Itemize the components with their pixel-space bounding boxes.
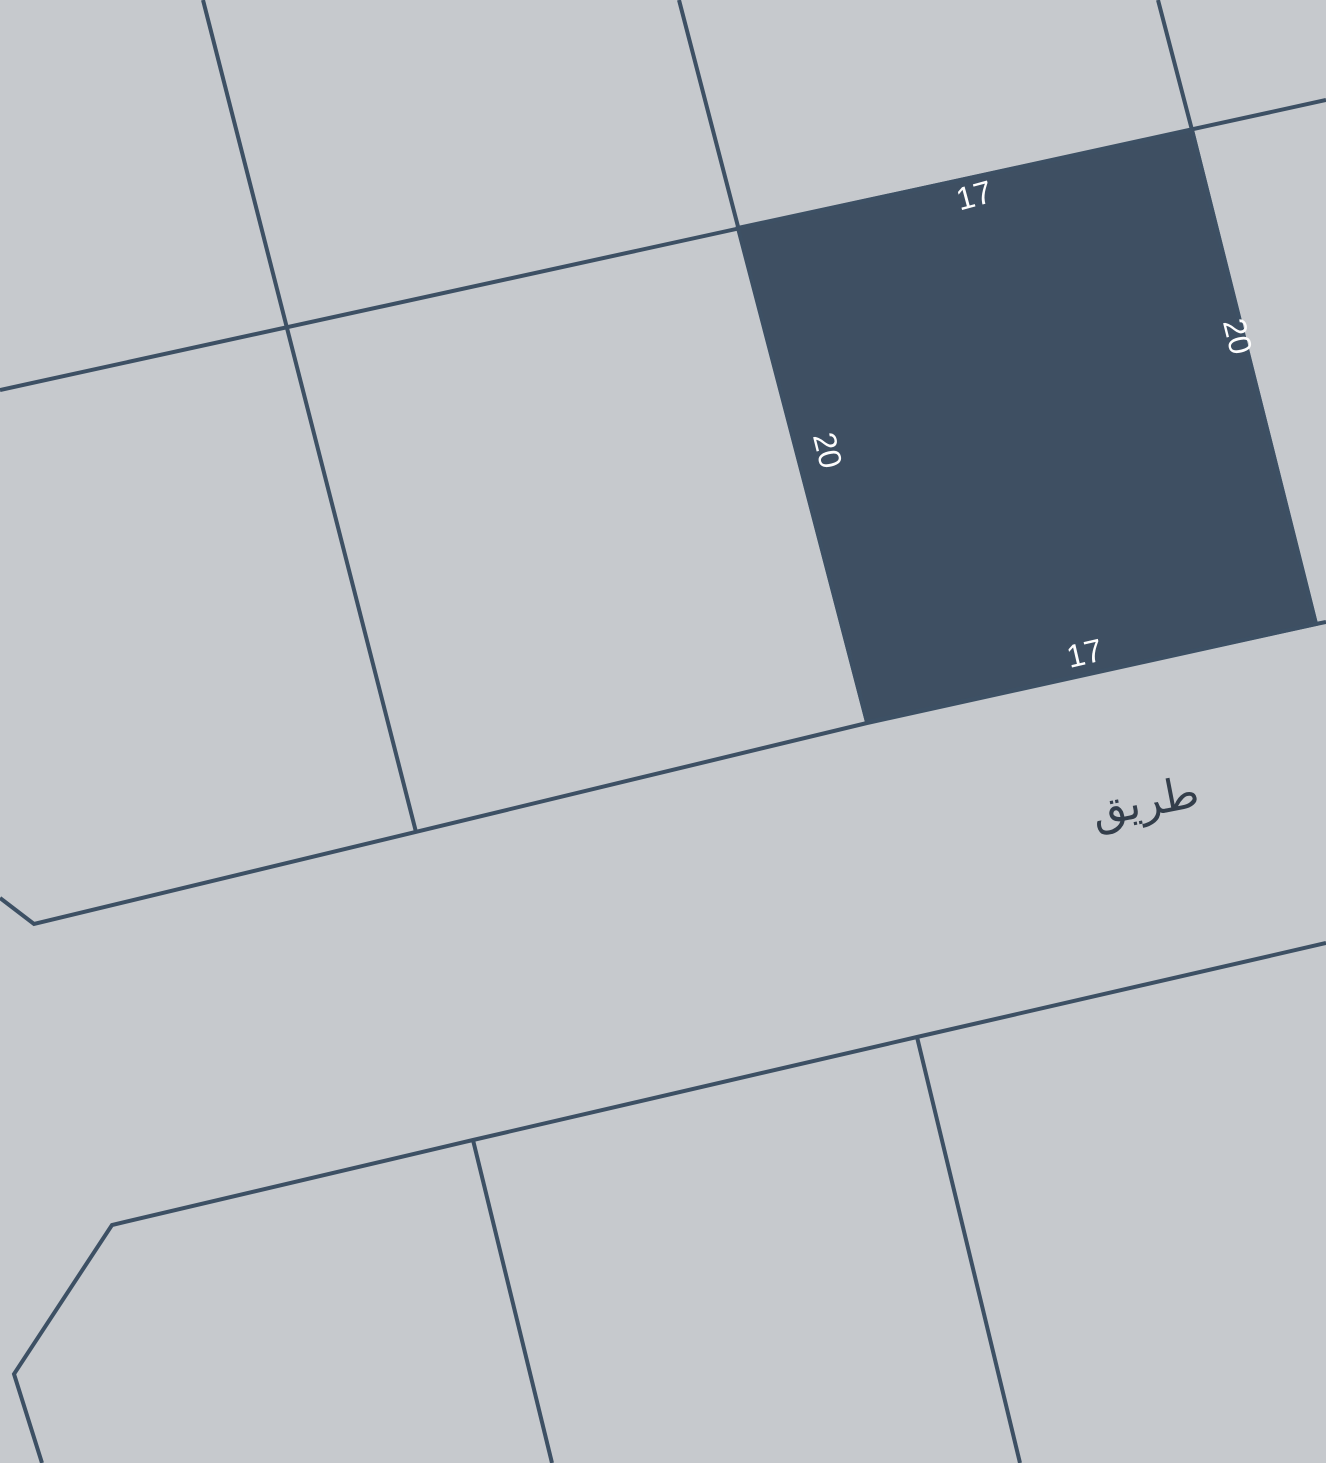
cadastral-map[interactable]: 17 20 20 17 طريق [0, 0, 1326, 1463]
